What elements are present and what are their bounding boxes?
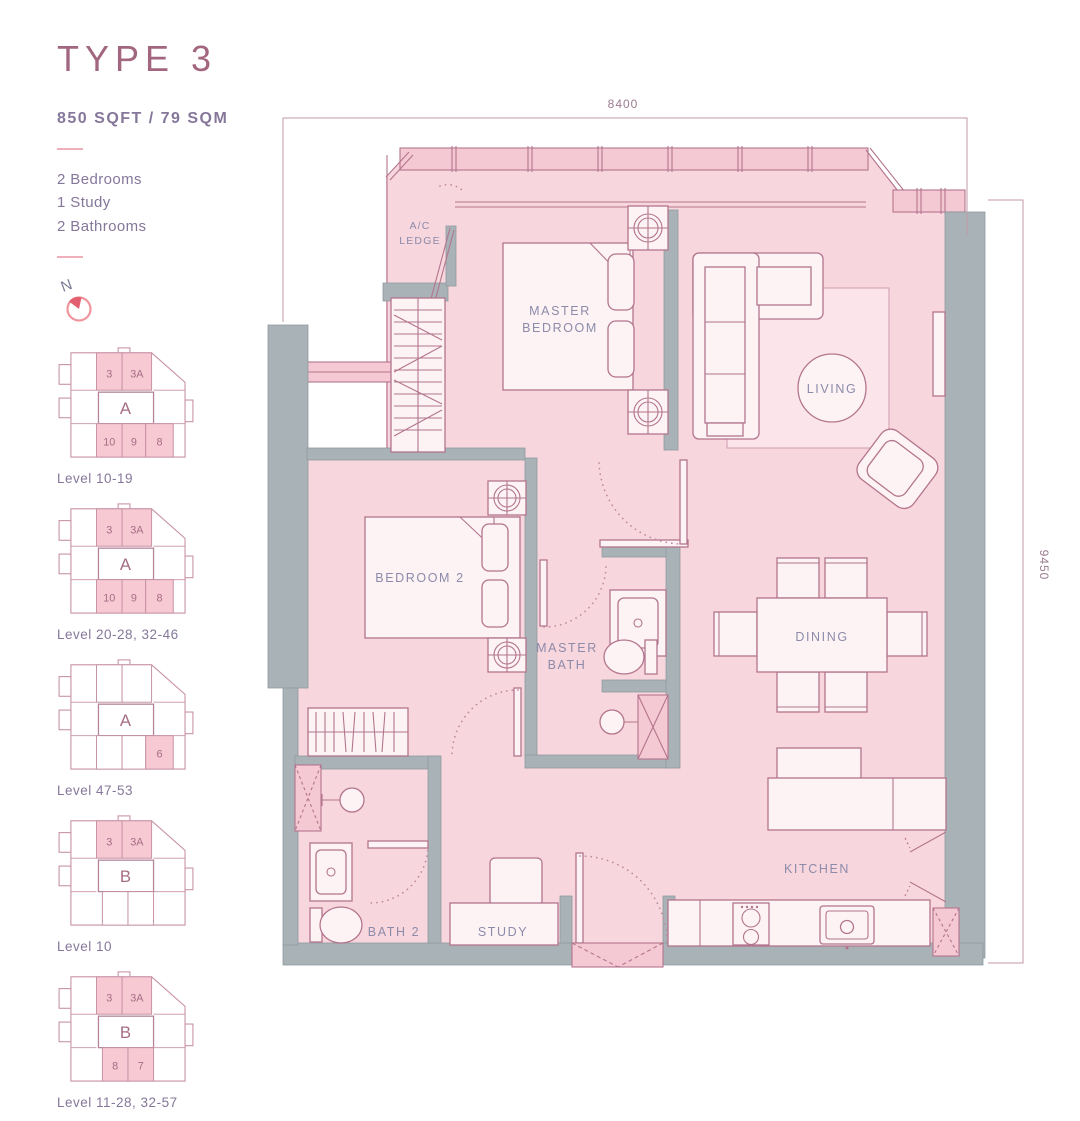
- feature-list: 2 Bedrooms 1 Study 2 Bathrooms: [57, 168, 272, 238]
- unit-number: 3: [106, 524, 112, 536]
- feature-item: 2 Bedrooms: [57, 168, 272, 191]
- dimension-width: 8400: [608, 97, 639, 111]
- wardrobe-master: [391, 298, 445, 452]
- room-label-kitchen: KITCHEN: [784, 862, 850, 876]
- room-label-ac-ledge: A/C: [409, 220, 430, 232]
- unit-cell: [96, 735, 122, 768]
- room-label-bath2: BATH 2: [368, 925, 420, 939]
- unit-number: 8: [156, 436, 162, 448]
- keyplan-level-10: 3 3A B Level 10: [57, 809, 272, 954]
- unit-number: 3: [106, 368, 112, 380]
- toilet: [310, 907, 362, 943]
- keyplan-label: Level 11-28, 32-57: [57, 1095, 272, 1110]
- ledge-shelf: [600, 540, 688, 547]
- island-counter: [768, 778, 946, 830]
- unit-number: 7: [138, 1060, 144, 1072]
- keyplan-level-47-53: A 6 Level 47-53: [57, 653, 272, 798]
- entrance-mat: [572, 943, 663, 967]
- unit-number: 8: [156, 592, 162, 604]
- unit-number: 3: [106, 836, 112, 848]
- unit-number: 3: [106, 992, 112, 1004]
- shaft: [638, 695, 668, 759]
- keyplan-level-20-46: 3 3A A 10 9 8 Level 20-28, 32-46: [57, 497, 272, 642]
- shaft: [295, 765, 321, 831]
- unit-number: 3A: [130, 368, 144, 380]
- keyplan-label: Level 10: [57, 939, 272, 954]
- unit-number: 8: [112, 1060, 118, 1072]
- room-label-living: LIVING: [807, 382, 858, 396]
- kitchen-counter: [668, 900, 930, 946]
- north-indicator: N: [57, 276, 272, 331]
- keyplan-level-11-57: 3 3A B 8 7 Level 11-28, 32-57: [57, 965, 272, 1110]
- keyplan-label: Level 20-28, 32-46: [57, 627, 272, 642]
- room-label-master-bath: MASTER: [536, 641, 598, 655]
- hob: [733, 903, 769, 945]
- kitchen-sink: [820, 906, 874, 950]
- divider: [57, 256, 83, 258]
- wardrobe-bedroom2: [308, 708, 408, 756]
- unit-cell: [122, 735, 146, 768]
- keyplan-label: Level 47-53: [57, 783, 272, 798]
- page-title: TYPE 3: [57, 38, 272, 80]
- keyplan-label: Level 10-19: [57, 471, 272, 486]
- unit-number: 9: [131, 436, 137, 448]
- divider: [57, 148, 83, 150]
- info-sidebar: TYPE 3 850 SQFT / 79 SQM 2 Bedrooms 1 St…: [57, 38, 272, 1121]
- floorplan: A/C LEDGE MASTER BEDROOM LIVING BEDROOM …: [250, 88, 1070, 1020]
- dimension-height: 9450: [1037, 550, 1051, 581]
- feature-item: 2 Bathrooms: [57, 215, 272, 238]
- block-letter: A: [120, 711, 132, 730]
- block-letter: A: [120, 555, 132, 574]
- unit-cell: [122, 665, 152, 702]
- room-label-dining: DINING: [795, 630, 848, 644]
- compass-icon: [68, 297, 91, 320]
- unit-number: 10: [103, 592, 115, 604]
- unit-cell: [96, 665, 122, 702]
- room-label-bedroom2: BEDROOM 2: [375, 571, 464, 585]
- tv: [933, 312, 945, 396]
- unit-number: 3A: [130, 836, 144, 848]
- block-letter: A: [120, 399, 132, 418]
- block-letter: B: [120, 867, 132, 886]
- chair: [490, 858, 542, 906]
- counter-box: [777, 748, 861, 782]
- shaft: [933, 908, 959, 956]
- unit-cell: [102, 891, 128, 924]
- unit-number: 3A: [130, 524, 144, 536]
- unit-cell: [128, 891, 154, 924]
- unit-area: 850 SQFT / 79 SQM: [57, 110, 272, 128]
- unit-number: 10: [103, 436, 115, 448]
- room-label-master-bedroom: BEDROOM: [522, 321, 598, 335]
- unit-number: 3A: [130, 992, 144, 1004]
- block-letter: B: [120, 1023, 132, 1042]
- toilet: [604, 640, 657, 674]
- unit-number: 9: [131, 592, 137, 604]
- room-label-study: STUDY: [478, 925, 528, 939]
- north-label: N: [59, 276, 75, 296]
- keyplan-level-10-19: 3 3A A 10 9 8 Level 10-19: [57, 341, 272, 486]
- feature-item: 1 Study: [57, 191, 272, 214]
- room-label-ac-ledge: LEDGE: [399, 235, 441, 247]
- room-label-master-bath: BATH: [548, 658, 587, 672]
- unit-number: 6: [156, 748, 162, 760]
- room-label-master-bedroom: MASTER: [529, 304, 591, 318]
